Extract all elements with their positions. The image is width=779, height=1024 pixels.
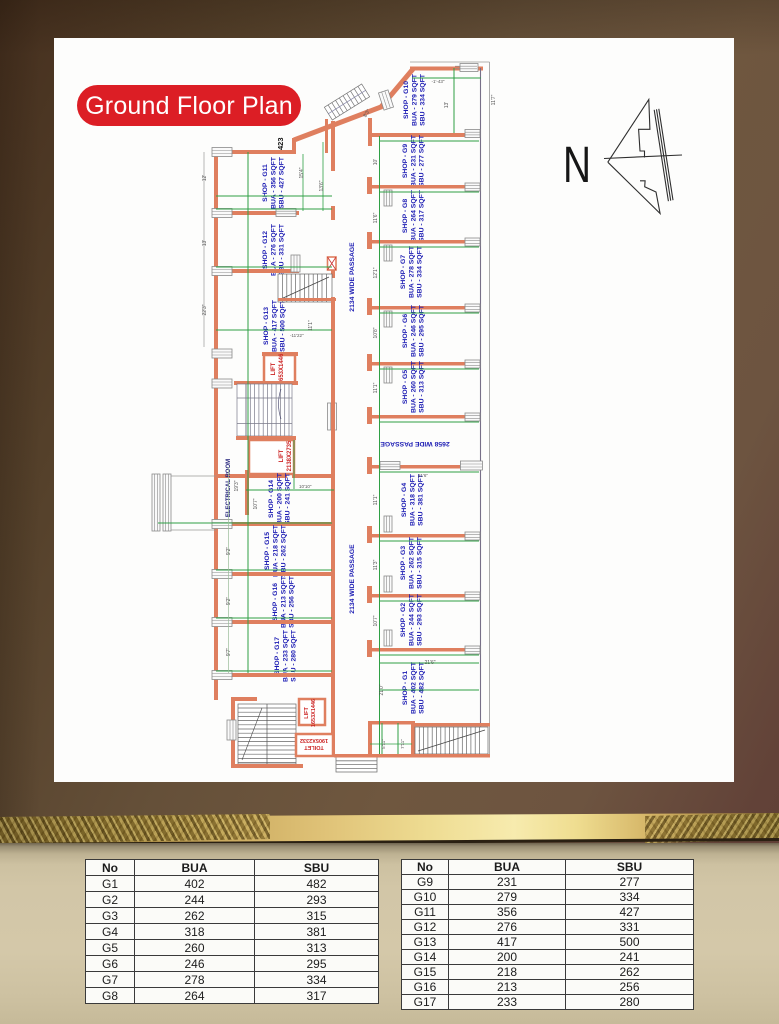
svg-text:BUA - 356 SQFT: BUA - 356 SQFT xyxy=(270,156,277,209)
svg-text:-1'-43": -1'-43" xyxy=(432,79,445,84)
svg-text:BUA - 264 SQFT: BUA - 264 SQFT xyxy=(410,189,417,242)
svg-text:SBU - 317 SQFT: SBU - 317 SQFT xyxy=(419,189,426,242)
svg-text:BUA - 417 SQFT: BUA - 417 SQFT xyxy=(271,299,278,352)
svg-text:SBU - 241 SQFT: SBU - 241 SQFT xyxy=(285,472,292,525)
svg-text:SHOP - G14: SHOP - G14 xyxy=(268,480,275,518)
svg-text:12': 12' xyxy=(202,175,208,182)
svg-text:19'3": 19'3" xyxy=(234,480,240,491)
svg-text:12'1": 12'1" xyxy=(373,267,379,278)
svg-text:SBU - 256 SQFT: SBU - 256 SQFT xyxy=(289,575,296,628)
svg-text:TOILET: TOILET xyxy=(304,744,324,750)
svg-text:10'8": 10'8" xyxy=(373,327,379,338)
svg-text:11'3": 11'3" xyxy=(373,559,379,570)
svg-text:SHOP - G3: SHOP - G3 xyxy=(400,546,407,580)
svg-text:BUA - 279 SQFT: BUA - 279 SQFT xyxy=(411,73,418,126)
svg-text:SHOP - G1: SHOP - G1 xyxy=(402,671,409,705)
svg-text:SHOP - G2: SHOP - G2 xyxy=(400,603,407,637)
svg-text:2138X2735: 2138X2735 xyxy=(287,440,293,471)
svg-text:2134 WIDE PASSAGE: 2134 WIDE PASSAGE xyxy=(349,242,356,312)
svg-text:SBU - 482 SQFT: SBU - 482 SQFT xyxy=(419,661,426,714)
svg-text:SHOP - G5: SHOP - G5 xyxy=(402,370,409,404)
svg-text:BUA - 318 SQFT: BUA - 318 SQFT xyxy=(409,473,416,526)
svg-text:BUA - 200 SQFT: BUA - 200 SQFT xyxy=(276,472,283,525)
svg-text:13': 13' xyxy=(202,240,208,247)
svg-text:BUA - 231 SQFT: BUA - 231 SQFT xyxy=(410,134,417,187)
svg-text:BUA - 402 SQFT: BUA - 402 SQFT xyxy=(410,661,417,714)
svg-text:1653X1446: 1653X1446 xyxy=(311,699,317,727)
svg-text:1905X2332: 1905X2332 xyxy=(300,737,328,743)
svg-text:SBU - 295 SQFT: SBU - 295 SQFT xyxy=(419,304,426,357)
svg-text:9'2": 9'2" xyxy=(226,547,232,556)
svg-text:SBU - 313 SQFT: SBU - 313 SQFT xyxy=(419,360,426,413)
svg-text:7'11": 7'11" xyxy=(400,739,405,749)
svg-text:SBU - 427 SQFT: SBU - 427 SQFT xyxy=(279,156,286,209)
svg-text:11'6": 11'6" xyxy=(373,212,379,223)
svg-text:SHOP - G10: SHOP - G10 xyxy=(403,81,410,119)
svg-text:SHOP - G17: SHOP - G17 xyxy=(274,637,281,675)
svg-text:BUA - 278 SQFT: BUA - 278 SQFT xyxy=(408,245,415,298)
svg-text:LIFT: LIFT xyxy=(279,449,285,462)
svg-text:SHOP - G16: SHOP - G16 xyxy=(272,583,279,621)
svg-text:11'1": 11'1" xyxy=(373,494,379,505)
svg-text:1653X1446: 1653X1446 xyxy=(279,353,285,384)
svg-text:SHOP - G4: SHOP - G4 xyxy=(401,483,408,517)
svg-text:SHOP - G15: SHOP - G15 xyxy=(264,532,271,570)
svg-text:11'7": 11'7" xyxy=(491,94,497,105)
svg-text:N: N xyxy=(563,136,591,193)
svg-text:ELECTRICAL ROOM: ELECTRICAL ROOM xyxy=(226,459,232,517)
svg-text:22'3": 22'3" xyxy=(202,304,208,315)
svg-text:SBU - 334 SQFT: SBU - 334 SQFT xyxy=(417,245,424,298)
svg-text:423: 423 xyxy=(276,137,285,150)
svg-text:21'6": 21'6" xyxy=(418,473,428,478)
svg-text:21'6": 21'6" xyxy=(424,660,435,666)
svg-text:SBU - 500 SQFT: SBU - 500 SQFT xyxy=(280,299,287,352)
svg-text:11'1": 11'1" xyxy=(373,382,379,393)
svg-text:SBU - 315 SQFT: SBU - 315 SQFT xyxy=(417,536,424,589)
svg-text:13'6": 13'6" xyxy=(319,180,325,191)
svg-text:9'2": 9'2" xyxy=(226,597,232,606)
svg-text:SBU - 262 SQFT: SBU - 262 SQFT xyxy=(281,524,288,577)
svg-text:BUA - 218 SQFT: BUA - 218 SQFT xyxy=(272,524,279,577)
svg-text:SBU - 381 SQFT: SBU - 381 SQFT xyxy=(418,473,425,526)
svg-text:11'1": 11'1" xyxy=(308,320,314,331)
svg-text:LIFT: LIFT xyxy=(304,707,310,719)
svg-text:LIFT: LIFT xyxy=(271,362,277,375)
svg-text:-11'22": -11'22" xyxy=(290,333,304,338)
svg-text:15'4": 15'4" xyxy=(299,167,305,178)
svg-text:SHOP - G12: SHOP - G12 xyxy=(262,231,269,269)
svg-text:BUA - 246 SQFT: BUA - 246 SQFT xyxy=(410,304,417,357)
svg-text:SBU - 334 SQFT: SBU - 334 SQFT xyxy=(420,73,427,126)
svg-text:21'0": 21'0" xyxy=(379,684,385,695)
svg-text:10': 10' xyxy=(373,159,379,166)
svg-text:SHOP - G13: SHOP - G13 xyxy=(263,307,270,345)
svg-text:2658 WIDE PASSAGE: 2658 WIDE PASSAGE xyxy=(380,440,450,447)
svg-text:BUA - 260 SQFT: BUA - 260 SQFT xyxy=(410,360,417,413)
svg-text:BUA - 262 SQFT: BUA - 262 SQFT xyxy=(408,536,415,589)
svg-text:13': 13' xyxy=(444,102,450,109)
svg-text:9'7": 9'7" xyxy=(226,648,232,657)
svg-text:10'10": 10'10" xyxy=(299,484,312,489)
svg-text:10'7": 10'7" xyxy=(253,498,259,509)
svg-text:SBU - 277 SQFT: SBU - 277 SQFT xyxy=(419,134,426,187)
svg-text:SHOP - G9: SHOP - G9 xyxy=(402,144,409,178)
svg-text:BUA - 276 SQFT: BUA - 276 SQFT xyxy=(270,223,277,276)
svg-text:SBU - 331 SQFT: SBU - 331 SQFT xyxy=(279,223,286,276)
svg-text:5'11": 5'11" xyxy=(381,739,386,749)
svg-text:SHOP - G8: SHOP - G8 xyxy=(402,199,409,233)
svg-text:2134 WIDE PASSAGE: 2134 WIDE PASSAGE xyxy=(349,544,356,614)
svg-text:10'7": 10'7" xyxy=(373,615,379,626)
svg-text:SHOP - G7: SHOP - G7 xyxy=(400,255,407,289)
svg-text:SHOP - G6: SHOP - G6 xyxy=(402,314,409,348)
